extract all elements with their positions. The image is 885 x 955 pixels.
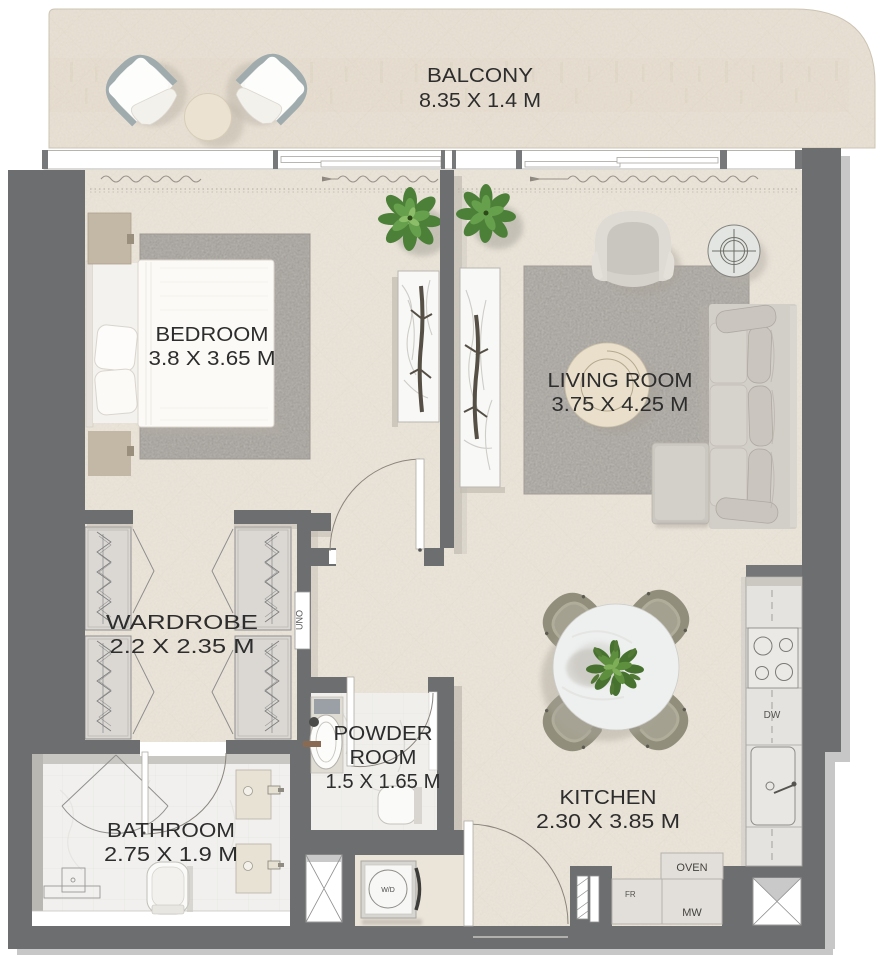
- svg-text:3.8 X 3.65 M: 3.8 X 3.65 M: [149, 348, 276, 370]
- svg-text:8.35 X 1.4 M: 8.35 X 1.4 M: [419, 90, 541, 112]
- svg-text:POWDER: POWDER: [334, 723, 433, 745]
- svg-text:BALCONY: BALCONY: [427, 65, 533, 87]
- svg-text:2.75 X 1.9 M: 2.75 X 1.9 M: [104, 844, 238, 866]
- svg-text:MW: MW: [682, 907, 702, 919]
- svg-text:2.2 X 2.35 M: 2.2 X 2.35 M: [110, 636, 255, 658]
- svg-text:W/D: W/D: [381, 887, 395, 894]
- svg-text:UNO: UNO: [295, 610, 305, 630]
- svg-text:2.30 X 3.85 M: 2.30 X 3.85 M: [536, 811, 680, 833]
- svg-text:LIVING ROOM: LIVING ROOM: [548, 370, 693, 392]
- svg-text:OVEN: OVEN: [676, 862, 707, 874]
- svg-text:BEDROOM: BEDROOM: [156, 324, 269, 346]
- svg-text:3.75 X 4.25 M: 3.75 X 4.25 M: [552, 394, 689, 416]
- svg-text:1.5 X 1.65 M: 1.5 X 1.65 M: [326, 771, 441, 793]
- svg-text:ROOM: ROOM: [350, 747, 417, 769]
- svg-text:KITCHEN: KITCHEN: [560, 787, 657, 809]
- svg-text:FR: FR: [625, 890, 636, 899]
- svg-text:DW: DW: [764, 710, 781, 721]
- svg-text:BATHROOM: BATHROOM: [107, 820, 235, 842]
- svg-text:WARDROBE: WARDROBE: [106, 612, 258, 634]
